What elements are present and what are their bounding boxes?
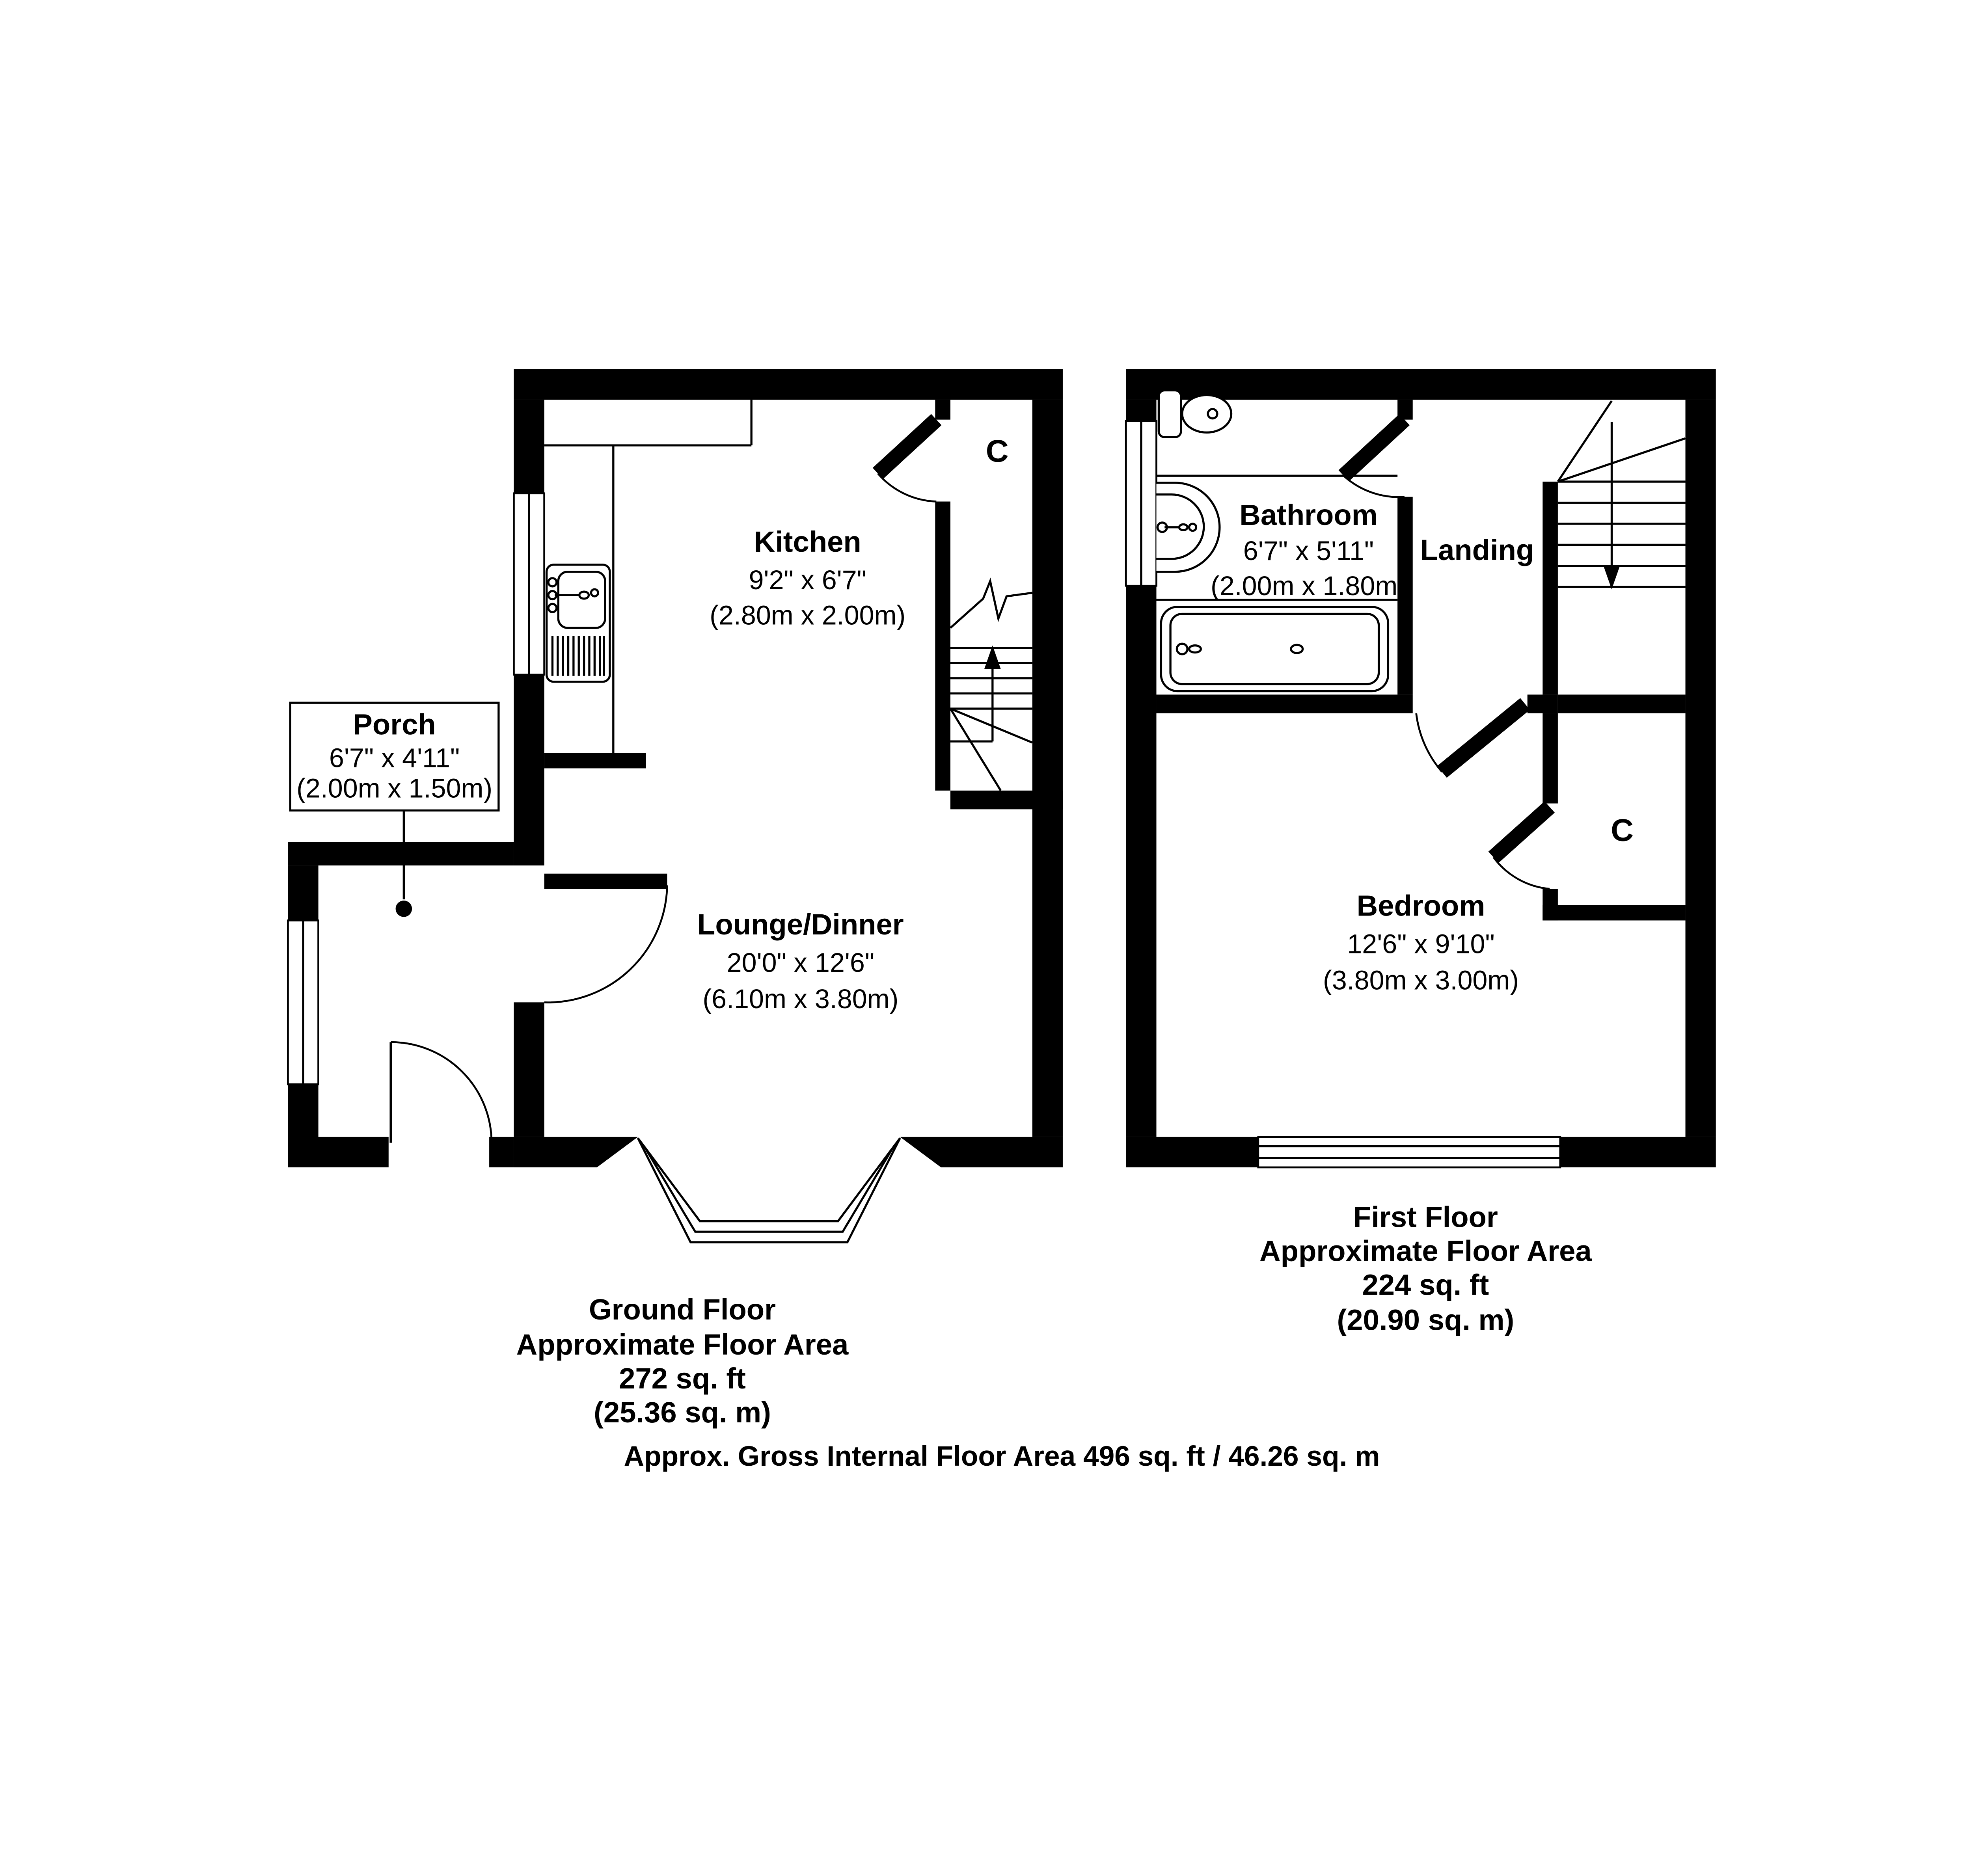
door-swing-arc (391, 1042, 492, 1143)
door-leaf (878, 420, 936, 474)
caption-line: First Floor (1353, 1200, 1498, 1233)
porch-leader-dot (396, 901, 412, 917)
door-leaf (1344, 420, 1405, 476)
porch-left-wall (288, 865, 318, 921)
caption-line: 224 sq. ft (1362, 1269, 1489, 1301)
bay-window (638, 1138, 900, 1242)
porch-label: Porch (353, 708, 436, 741)
ground-floor-caption: Ground Floor Approximate Floor Area 272 … (516, 1293, 849, 1429)
bathroom-dims-imperial: 6'7" x 5'11" (1243, 536, 1374, 566)
wall-segment (1686, 400, 1716, 1137)
wall-stub (1528, 694, 1558, 713)
stair-winder (1558, 438, 1686, 482)
gross-area-footer: Approx. Gross Internal Floor Area 496 sq… (624, 1440, 1380, 1472)
kitchen-label: Kitchen (754, 525, 861, 558)
sink-drain (591, 589, 598, 596)
caption-line: Approximate Floor Area (516, 1328, 849, 1361)
door-leaf (1442, 704, 1525, 772)
stairwell-wall (1543, 482, 1558, 694)
sink-tap (548, 604, 557, 612)
sink-tap (548, 578, 557, 586)
kitchen-lounge-divider-wall (544, 753, 646, 769)
bathtub-icon (1161, 607, 1388, 691)
first-floor-walls (1126, 369, 1716, 1167)
first-floor-plan: Bathroom 6'7" x 5'11" (2.00m x 1.80m) La… (1126, 369, 1716, 1336)
ground-floor-stairs (950, 581, 1032, 790)
wall-segment (514, 675, 544, 865)
window-frame (1258, 1137, 1560, 1167)
wall-segment (514, 369, 1063, 400)
bath-spout-tip (1189, 646, 1201, 653)
porch-window (288, 920, 318, 1084)
lounge-dims-metric: (6.10m x 3.80m) (702, 984, 898, 1014)
closet-top-wall (1558, 694, 1686, 713)
bath-drain (1291, 645, 1303, 653)
caption-line: (25.36 sq. m) (594, 1396, 771, 1429)
basin-spout-tip (1179, 524, 1187, 530)
toilet-drain (1208, 409, 1217, 419)
floorplan-canvas: Porch 6'7" x 4'11" (2.00m x 1.50m) Kitch… (0, 0, 1971, 1876)
caption-line: (20.90 sq. m) (1337, 1304, 1515, 1336)
toilet-bowl (1182, 395, 1231, 432)
ground-closet-label: C (986, 433, 1009, 469)
sink-bowl (558, 572, 605, 628)
door-leaf (544, 874, 667, 889)
bath-tap (1177, 644, 1187, 654)
door-swing-arc (1416, 713, 1442, 772)
caption-line: Ground Floor (589, 1293, 776, 1326)
stair-break-line (950, 581, 1032, 628)
lounge-label: Lounge/Dinner (697, 908, 904, 941)
basin-drain (1189, 524, 1196, 531)
caption-line: Approximate Floor Area (1259, 1234, 1592, 1267)
lounge-dims-imperial: 20'0" x 12'6" (727, 948, 874, 978)
sink-icon (547, 565, 610, 682)
front-door (391, 1042, 492, 1143)
first-floor-stairs (1558, 401, 1686, 589)
bedroom-dims-imperial: 12'6" x 9'10" (1347, 929, 1494, 959)
wall-segment-bay-right (900, 1137, 1063, 1167)
stair-winder (950, 709, 1032, 743)
door-swing-arc (878, 473, 936, 501)
wall-segment (1126, 586, 1156, 1137)
first-floor-caption: First Floor Approximate Floor Area 224 s… (1259, 1200, 1592, 1336)
first-floor-room-labels: Bathroom 6'7" x 5'11" (2.00m x 1.80m) La… (1211, 499, 1634, 996)
understair-wall (950, 791, 1063, 810)
toilet-cistern (1159, 390, 1181, 437)
bedroom-label: Bedroom (1357, 890, 1485, 922)
porch-bottom-wall (489, 1137, 514, 1167)
bathroom-label: Bathroom (1239, 499, 1377, 531)
closet-wall-stub (1543, 713, 1558, 804)
kitchen-window (514, 493, 544, 675)
bedroom-door (1416, 704, 1525, 772)
wall-segment-bay-left (514, 1137, 638, 1167)
porch-label-callout: Porch 6'7" x 4'11" (2.00m x 1.50m) (290, 703, 499, 917)
bathroom-dims-metric: (2.00m x 1.80m) (1211, 571, 1407, 601)
wall-segment (514, 400, 544, 493)
bathroom-bedroom-divider (1156, 694, 1412, 713)
basin-icon (1156, 483, 1219, 572)
porch-top-wall (288, 842, 514, 865)
bay-glazing-line (645, 1147, 893, 1232)
porch-dims-metric: (2.00m x 1.50m) (296, 774, 492, 804)
wall-segment (1126, 400, 1156, 421)
bedroom-window (1258, 1137, 1560, 1167)
kitchen-dims-imperial: 9'2" x 6'7" (749, 565, 866, 595)
closet-wall-stub (935, 400, 950, 419)
closet-door (878, 420, 936, 502)
first-floor-closet-label: C (1611, 812, 1634, 848)
bay-glazing-line (652, 1157, 886, 1221)
bathroom-window (1126, 421, 1156, 586)
door-leaf (1494, 807, 1550, 857)
sink-spout-tip (579, 592, 589, 599)
stairwell-wall (935, 502, 950, 791)
closet-bottom-wall (1543, 905, 1685, 921)
bedroom-dims-metric: (3.80m x 3.00m) (1323, 966, 1519, 996)
wall-segment (1032, 400, 1063, 1137)
caption-line: 272 sq. ft (619, 1362, 746, 1395)
wall-segment (514, 1002, 544, 1137)
ground-floor-plan: Porch 6'7" x 4'11" (2.00m x 1.50m) Kitch… (288, 369, 1063, 1429)
toilet-icon (1159, 390, 1231, 437)
first-floor-closet-door (1494, 807, 1550, 889)
stairs-down-arrow-icon (1604, 422, 1620, 590)
door-swing-arc (1494, 857, 1550, 889)
porch-bottom-wall (288, 1137, 388, 1167)
door-swing-arc (1344, 476, 1405, 497)
stair-winder (1558, 401, 1612, 482)
wall-segment (1126, 1137, 1258, 1167)
bathroom-door (1344, 420, 1405, 497)
kitchen-dims-metric: (2.80m x 2.00m) (710, 600, 905, 630)
ground-floor-room-labels: Kitchen 9'2" x 6'7" (2.80m x 2.00m) Loun… (697, 433, 1009, 1014)
wall-segment (1560, 1137, 1716, 1167)
landing-label: Landing (1420, 534, 1534, 566)
porch-dims-imperial: 6'7" x 4'11" (329, 743, 460, 773)
porch-to-lounge-door (544, 874, 667, 1003)
door-swing-arc (544, 885, 667, 1002)
